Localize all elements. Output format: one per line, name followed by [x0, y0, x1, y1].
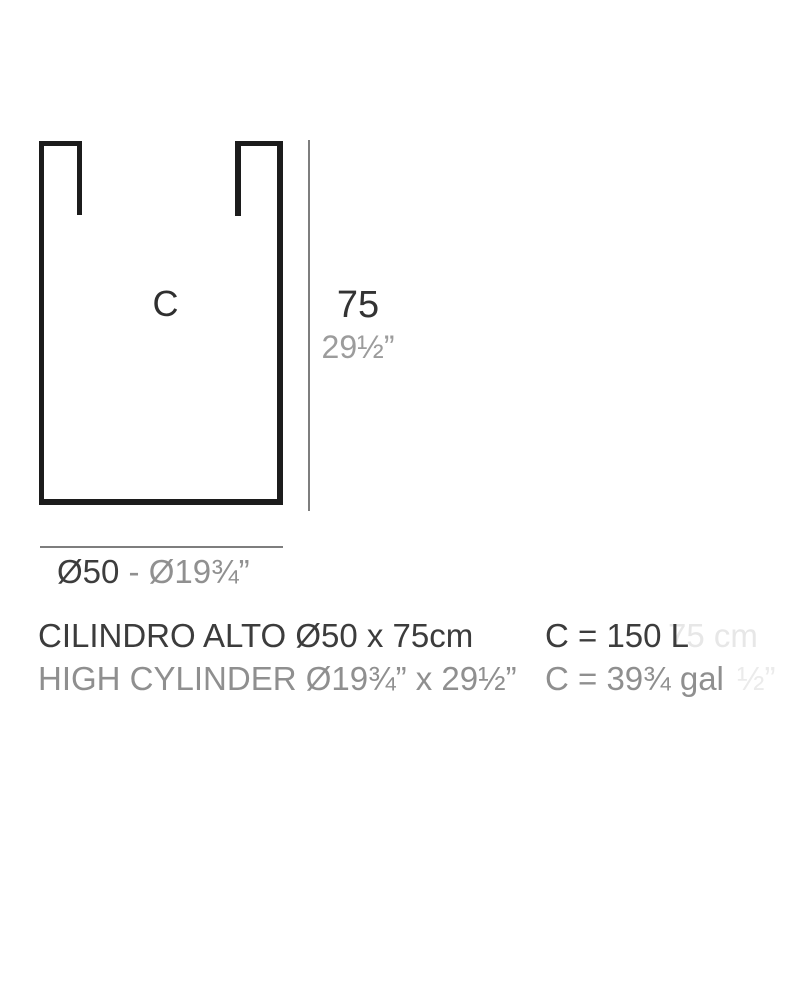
vessel-top-left-rim-line [39, 141, 82, 146]
diameter-value-cm: Ø50 [57, 553, 119, 590]
vessel-bottom-line [39, 499, 283, 505]
vessel-left-wall-line [39, 141, 44, 505]
capacity-gallons: C = 39¾ gal [545, 661, 724, 698]
height-value-inches: 29½” [312, 330, 404, 366]
ghost-text-fragment-imperial: ½” [737, 661, 776, 698]
vessel-top-right-rim-line [235, 141, 283, 146]
diameter-value-separator: - [119, 553, 148, 590]
diameter-dimension-line [40, 546, 283, 548]
height-value-cm: 75 [326, 284, 390, 327]
diameter-value: Ø50 - Ø19¾” [57, 554, 250, 591]
vessel-inner-right-rim-line [235, 141, 241, 216]
capacity-liters: C = 150 L [545, 618, 689, 655]
product-spec-sheet: C 75 29½” Ø50 - Ø19¾” 75 cm ½” CILINDRO … [0, 0, 805, 1005]
product-title-metric: CILINDRO ALTO Ø50 x 75cm [38, 618, 473, 655]
product-title-imperial: HIGH CYLINDER Ø19¾” x 29½” [38, 661, 517, 698]
height-dimension-line [308, 140, 310, 511]
vessel-right-wall-line [277, 141, 283, 505]
diameter-value-inches: Ø19¾” [149, 553, 250, 590]
vessel-capacity-letter: C [136, 284, 196, 324]
vessel-inner-left-rim-line [77, 141, 82, 215]
